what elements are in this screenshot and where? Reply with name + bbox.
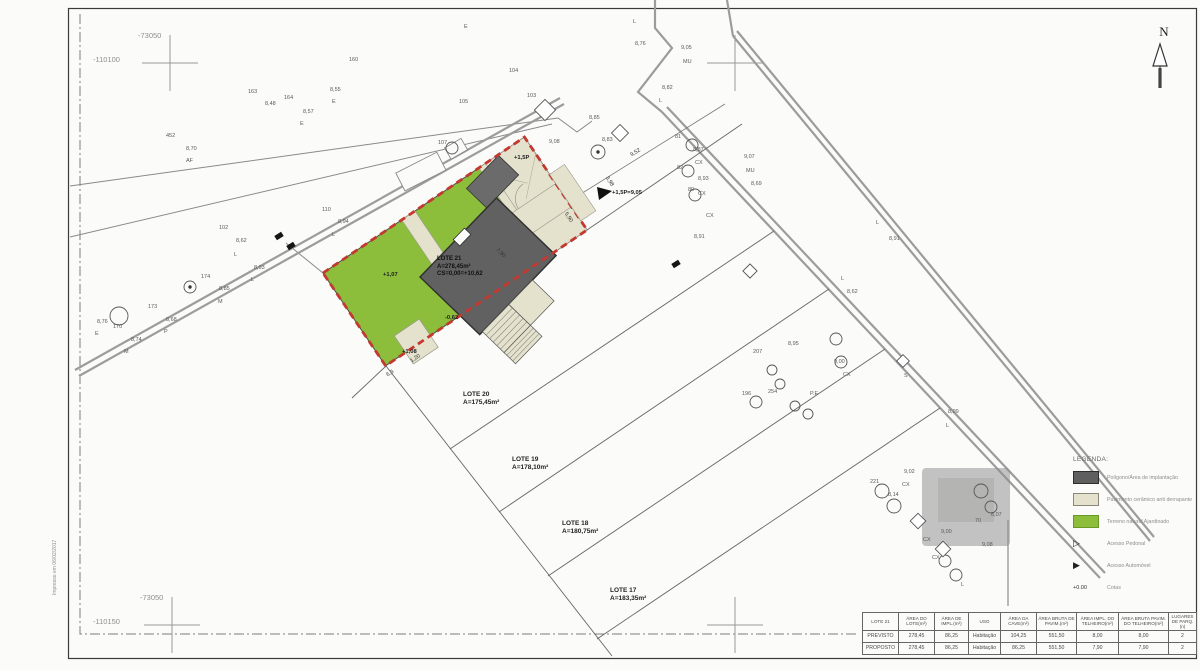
table-cell: 551,50 <box>1037 630 1077 642</box>
survey-circle <box>887 499 901 513</box>
table-row: PREVISTO278,4586,25Habitação104,25551,50… <box>863 630 1197 642</box>
survey-circle <box>939 555 951 567</box>
legend: LEGENDA: Polígono/Área de implantaçãoPav… <box>1073 456 1200 603</box>
table-cell: 2 <box>1169 630 1197 642</box>
legend-swatch-holder <box>1073 515 1099 528</box>
legend-item: Polígono/Área de implantação <box>1073 471 1200 484</box>
survey-circle <box>689 189 701 201</box>
legend-item-label: Pavimento cerâmico anti derrapante <box>1107 497 1192 503</box>
manhole-diamond <box>897 355 910 368</box>
table-header-cell: ÁREA IMPL. DO TELHEIRO(m²) <box>1077 613 1119 631</box>
table-cell: Habitação <box>969 642 1001 654</box>
table-cell: 104,25 <box>1001 630 1037 642</box>
survey-circle <box>682 165 694 177</box>
table-cell: 86,25 <box>1001 642 1037 654</box>
table-cell: 8,00 <box>1119 630 1169 642</box>
legend-item-label: Terreno natural Ajardinado <box>1107 519 1169 525</box>
legend-swatch-holder <box>1073 493 1099 506</box>
north-indicator: N <box>1144 24 1184 40</box>
survey-circle <box>875 484 889 498</box>
table-header-cell: ÁREA DE IMPL.(m²) <box>935 613 969 631</box>
survey-circle-dot <box>188 285 191 288</box>
legend-items: Polígono/Área de implantaçãoPavimento ce… <box>1073 471 1200 594</box>
legend-item: ▷Acesso Pedonal <box>1073 537 1200 550</box>
legend-cota-holder: +0.00 <box>1073 581 1099 594</box>
legend-item: +0.00Cotas <box>1073 581 1200 594</box>
table-header-cell: LUGARES DE PARQ.(n) <box>1169 613 1197 631</box>
legend-triangle-holder: ▶ <box>1073 559 1099 572</box>
table-cell: 2 <box>1169 642 1197 654</box>
legend-swatch <box>1073 515 1099 528</box>
table-cell: 86,25 <box>935 642 969 654</box>
legend-item-label: Cotas <box>1107 585 1121 591</box>
car-access-triangle <box>597 187 612 200</box>
table-header-cell: ÁREA DO LOTE(m²) <box>899 613 935 631</box>
survey-circle <box>835 356 847 368</box>
table-header-cell: USO <box>969 613 1001 631</box>
legend-triangle-holder: ▷ <box>1073 537 1099 550</box>
table-row: PROPOSTO278,4586,25Habitação86,25551,507… <box>863 642 1197 654</box>
coordinate-cross <box>142 35 763 653</box>
north-label: N <box>1144 24 1184 40</box>
cota-symbol: +0.00 <box>1073 585 1087 591</box>
table-header-cell: ÁREA BRUTA DE PAVIM.(m²) <box>1037 613 1077 631</box>
survey-circle <box>803 409 813 419</box>
legend-item-label: Polígono/Área de implantação <box>1107 475 1178 481</box>
car-access-icon: ▶ <box>1073 561 1080 570</box>
legend-swatch-holder <box>1073 471 1099 484</box>
table-cell: 86,25 <box>935 630 969 642</box>
site-plan-drawing <box>0 0 1200 670</box>
sheet-frame <box>69 9 1197 659</box>
legend-item-label: Acesso Pedonal <box>1107 541 1145 547</box>
legend-title: LEGENDA: <box>1073 456 1200 463</box>
legend-item: ▶Acesso Automóvel <box>1073 559 1200 572</box>
gate-marker <box>671 260 680 268</box>
survey-circle <box>830 333 842 345</box>
table-cell: 278,45 <box>899 630 935 642</box>
table-cell: 278,45 <box>899 642 935 654</box>
legend-swatch <box>1073 493 1099 506</box>
table-cell: Habitação <box>969 630 1001 642</box>
manhole-diamond <box>612 125 629 142</box>
gate-marker <box>274 232 283 240</box>
table-cell: 551,50 <box>1037 642 1077 654</box>
legend-item: Pavimento cerâmico anti derrapante <box>1073 493 1200 506</box>
survey-circle <box>950 569 962 581</box>
table-header-cell: ÁREA BRUTA PAVIM. DO TELHEIRO(m²) <box>1119 613 1169 631</box>
survey-circle <box>110 307 128 325</box>
survey-circle-dot <box>596 150 599 153</box>
survey-circle <box>767 365 777 375</box>
table-header-cell: ÁREA DA CAVE(m²) <box>1001 613 1037 631</box>
table-cell: 7,90 <box>1077 642 1119 654</box>
site-plan-sheet: LOTE 21 A=278,45m² CS=0,00=+10,62 -73050… <box>0 0 1200 670</box>
survey-circle <box>775 379 785 389</box>
legend-item-label: Acesso Automóvel <box>1107 563 1151 569</box>
areas-table-wrap: LOTE 21ÁREA DO LOTE(m²)ÁREA DE IMPL.(m²)… <box>862 612 1196 655</box>
table-row-label: PROPOSTO <box>863 642 899 654</box>
legend-item: Terreno natural Ajardinado <box>1073 515 1200 528</box>
print-note: Impresso em 06/02/2017 <box>52 540 58 595</box>
manhole-diamond <box>743 264 757 278</box>
table-cell: 7,90 <box>1119 642 1169 654</box>
survey-circle <box>750 396 762 408</box>
areas-table: LOTE 21ÁREA DO LOTE(m²)ÁREA DE IMPL.(m²)… <box>862 612 1197 655</box>
table-cell: 8,00 <box>1077 630 1119 642</box>
table-row-label: PREVISTO <box>863 630 899 642</box>
pedestrian-access-icon: ▷ <box>1073 539 1080 548</box>
north-arrow <box>1153 44 1167 88</box>
table-header-cell: LOTE 21 <box>863 613 899 631</box>
legend-swatch <box>1073 471 1099 484</box>
